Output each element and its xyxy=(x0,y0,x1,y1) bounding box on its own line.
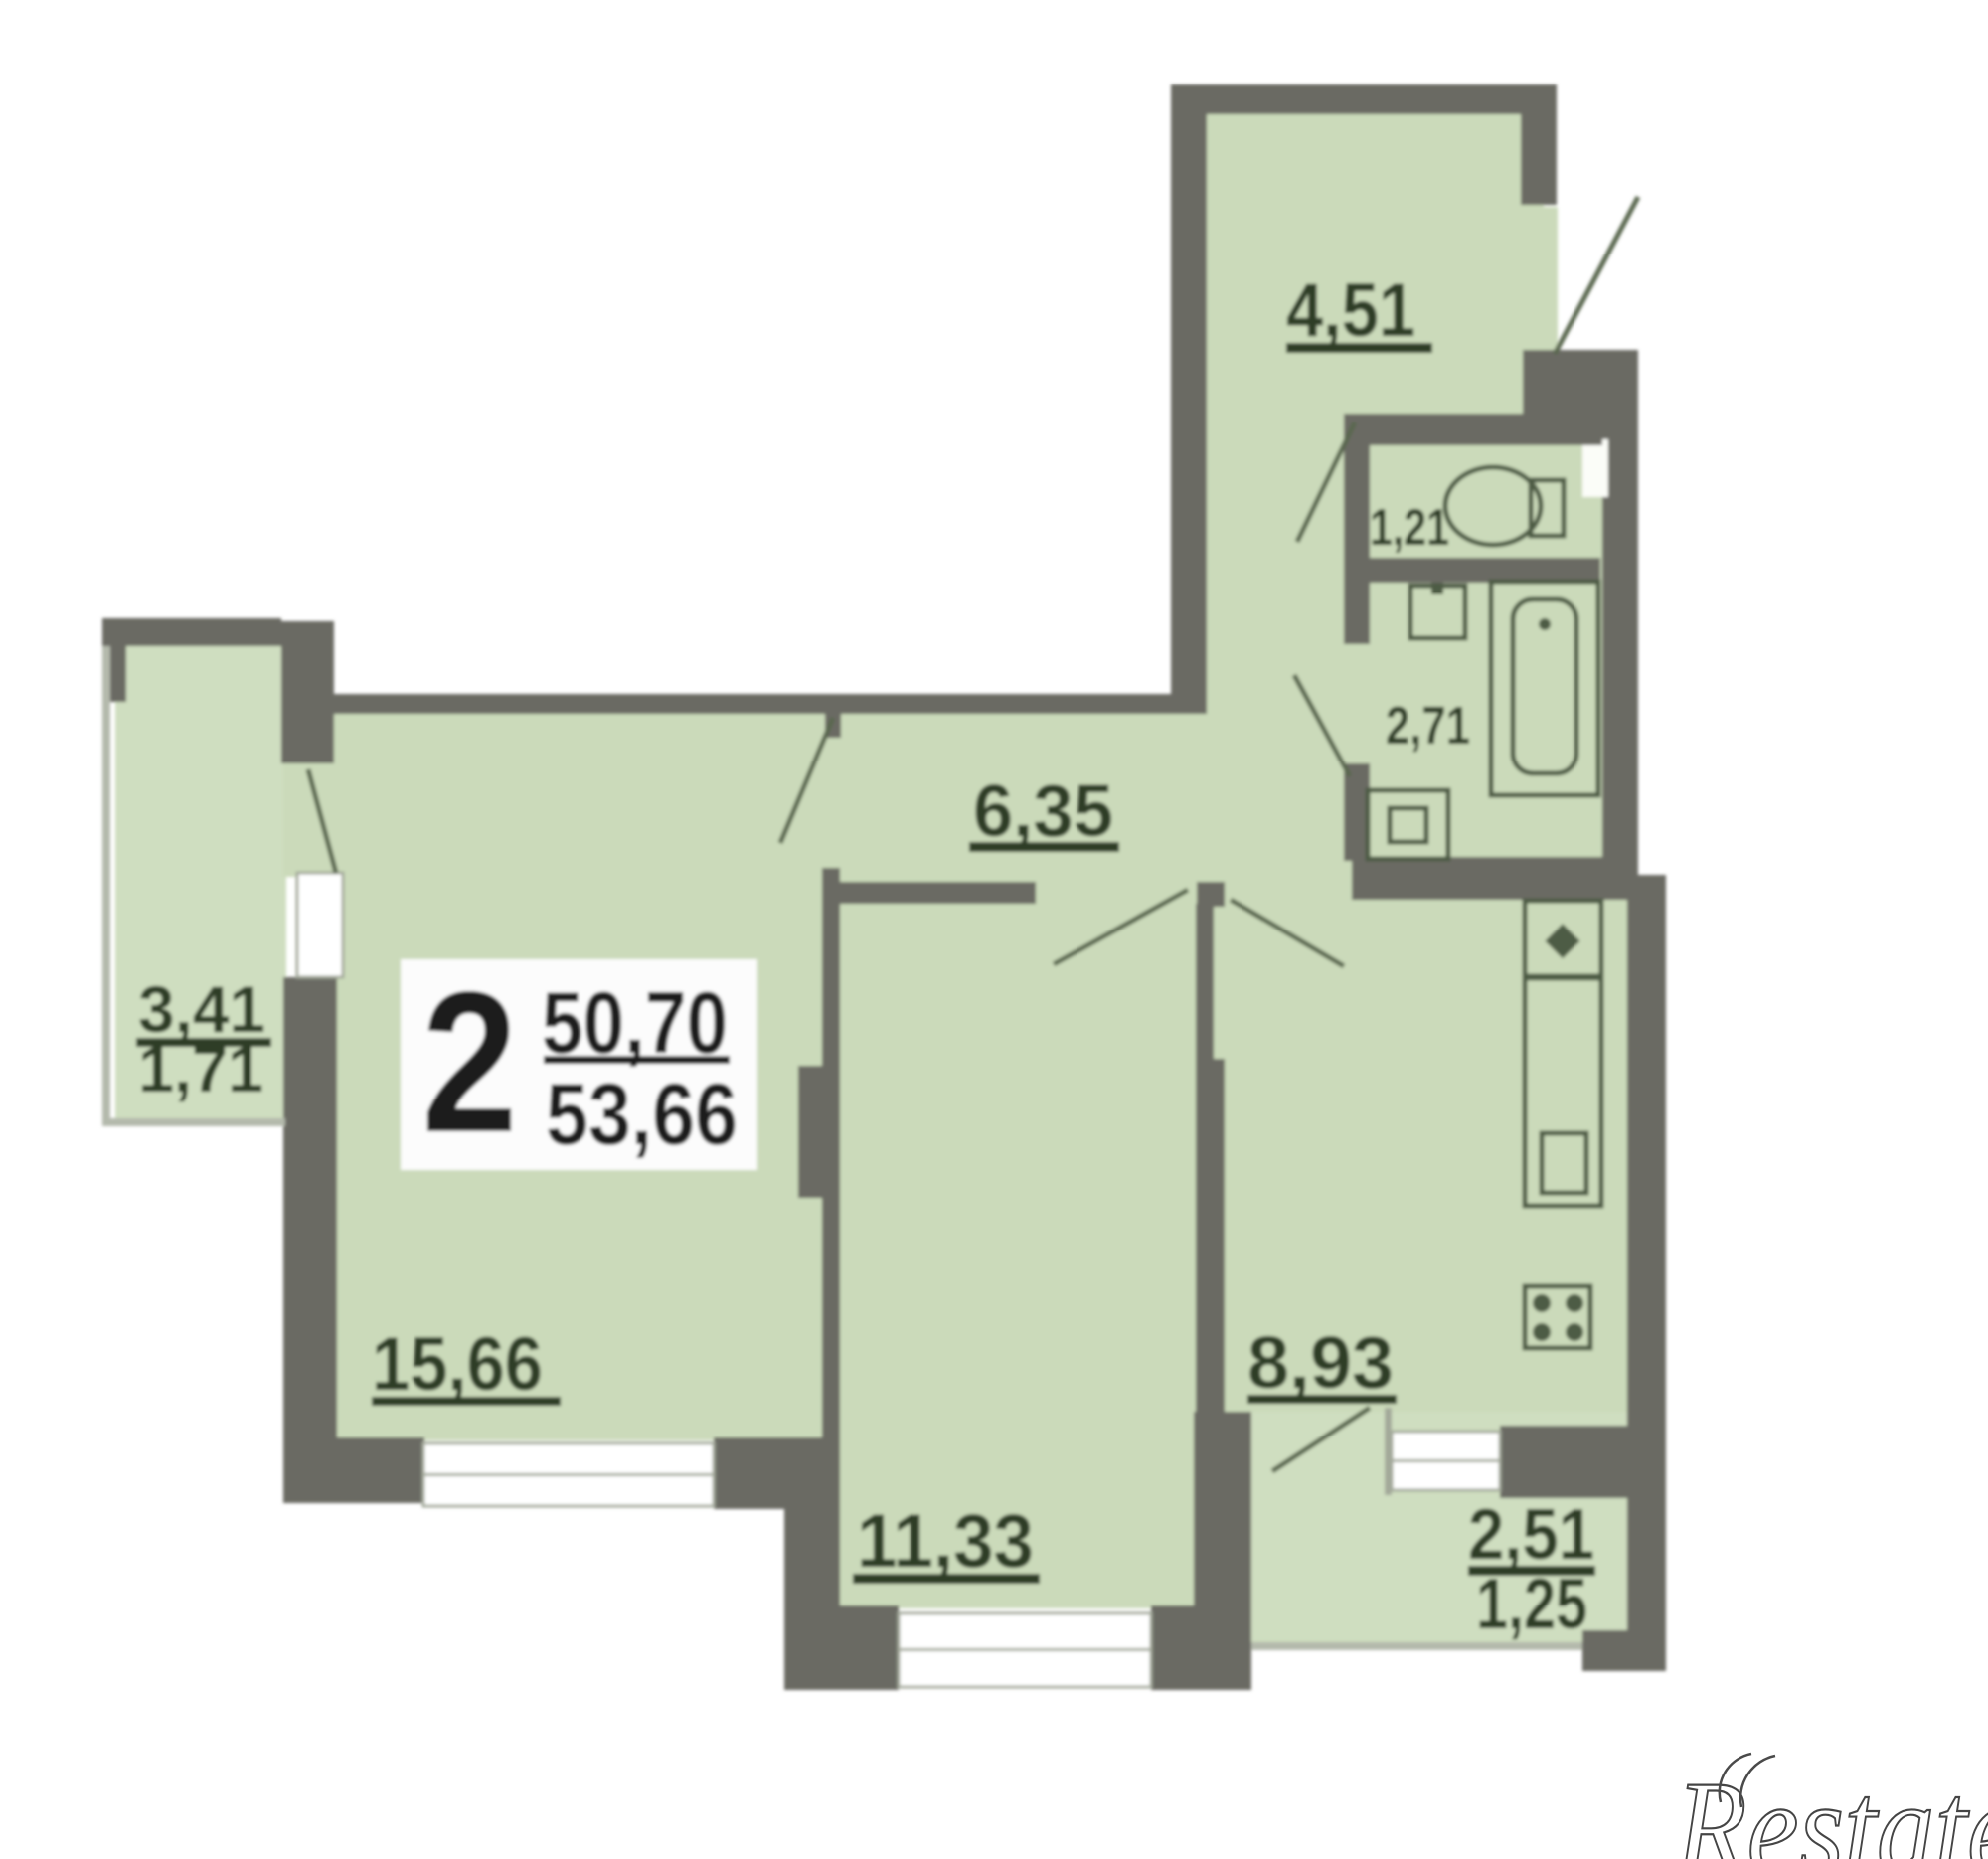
svg-text:1,25: 1,25 xyxy=(1476,1565,1587,1644)
svg-text:53,66: 53,66 xyxy=(546,1065,738,1163)
svg-text:11,33: 11,33 xyxy=(857,1499,1034,1584)
svg-text:1,71: 1,71 xyxy=(138,1032,263,1105)
svg-text:4,51: 4,51 xyxy=(1286,268,1415,353)
svg-text:15,66: 15,66 xyxy=(372,1322,543,1407)
svg-text:6,35: 6,35 xyxy=(973,769,1113,852)
svg-text:1,21: 1,21 xyxy=(1370,499,1449,557)
svg-text:2,71: 2,71 xyxy=(1386,696,1470,756)
svg-text:8,93: 8,93 xyxy=(1247,1321,1394,1404)
svg-text:2,51: 2,51 xyxy=(1468,1495,1594,1575)
svg-text:2: 2 xyxy=(421,949,518,1174)
svg-text:Restate: Restate xyxy=(1675,1755,1988,1859)
